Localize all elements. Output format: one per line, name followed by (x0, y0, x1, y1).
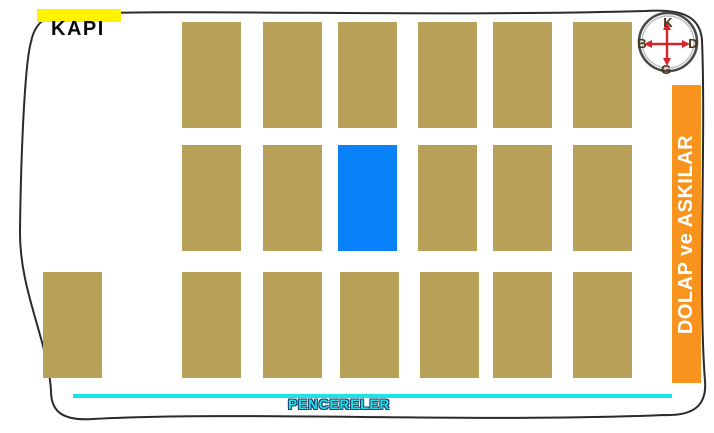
desk[interactable] (418, 145, 477, 251)
desk[interactable] (573, 22, 632, 128)
desk[interactable] (573, 272, 632, 378)
desk[interactable] (182, 272, 241, 378)
desk[interactable] (182, 145, 241, 251)
desk[interactable] (263, 145, 322, 251)
windows-label: PENCERELER (288, 397, 390, 412)
selected-desk[interactable] (338, 145, 397, 251)
classroom-seating-plan: KAPI K G B D DOLAP ve ASKILAR PENCERELER (0, 0, 714, 433)
desk[interactable] (263, 22, 322, 128)
desk[interactable] (340, 272, 399, 378)
desk[interactable] (573, 145, 632, 251)
desk[interactable] (182, 22, 241, 128)
desk[interactable] (493, 145, 552, 251)
desk[interactable] (418, 22, 477, 128)
desk[interactable] (43, 272, 102, 378)
desk[interactable] (420, 272, 479, 378)
desk[interactable] (338, 22, 397, 128)
desk[interactable] (493, 22, 552, 128)
desk[interactable] (493, 272, 552, 378)
desk[interactable] (263, 272, 322, 378)
desk-layer (0, 0, 714, 433)
